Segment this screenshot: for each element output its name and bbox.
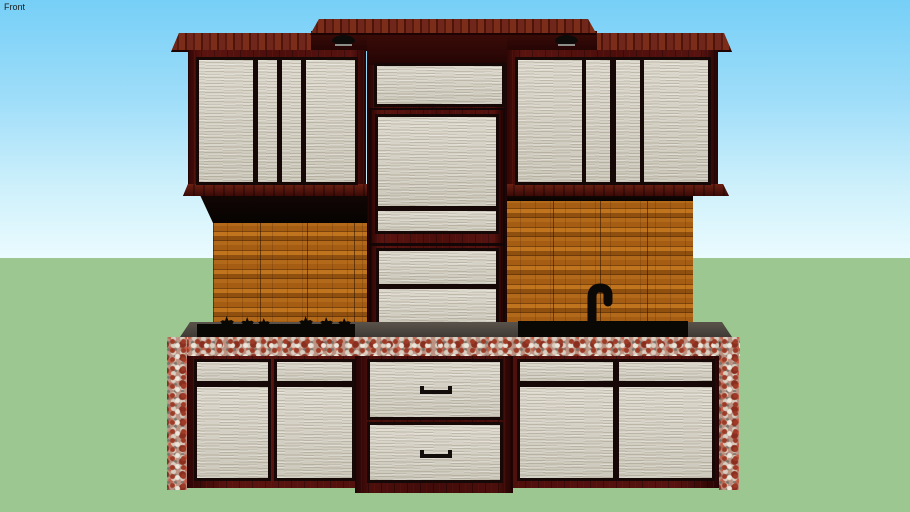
door-panel: [306, 60, 355, 182]
granite-side-left: [167, 337, 187, 490]
sink-basin: [518, 321, 688, 338]
puck-light-icon: [332, 35, 355, 44]
door-panel: [258, 60, 277, 182]
door-panel: [520, 387, 613, 478]
door-panel: [197, 387, 268, 478]
door-top-panel: [197, 362, 268, 381]
door-panel: [644, 60, 708, 182]
front-view-label: Front: [4, 2, 25, 12]
door-panel: [586, 60, 610, 182]
center-low-panel: [379, 289, 496, 326]
door-top-panel: [520, 362, 613, 381]
backsplash-left: [213, 222, 367, 330]
door-panel: [518, 60, 582, 182]
3d-viewport[interactable]: Front: [0, 0, 910, 512]
door-top-panel: [619, 362, 712, 381]
center-low-panel: [379, 251, 496, 284]
upper-cabinet-left-bottom-molding: [183, 184, 371, 196]
center-mid-panel-large: [378, 117, 496, 206]
center-mid-panel-small: [378, 211, 496, 231]
drawer-handle-icon: [418, 384, 454, 396]
door-top-panel: [277, 362, 352, 381]
door-panel: [616, 60, 640, 182]
drawer-handle-icon: [418, 448, 454, 460]
under-cabinet-shadow-left: [197, 195, 367, 223]
under-cabinet-shadow-right: [506, 196, 693, 201]
door-panel: [282, 60, 301, 182]
puck-light-icon: [555, 35, 578, 44]
center-top-panel: [377, 66, 502, 104]
door-panel: [199, 60, 253, 182]
upper-cabinet-right-bottom-molding: [503, 184, 729, 196]
granite-side-right: [719, 337, 739, 490]
door-panel: [619, 387, 712, 478]
center-cabinet-soffit: [367, 31, 507, 65]
granite-counter-edge: [170, 337, 740, 356]
door-panel: [277, 387, 352, 478]
valance-board: [310, 19, 597, 35]
